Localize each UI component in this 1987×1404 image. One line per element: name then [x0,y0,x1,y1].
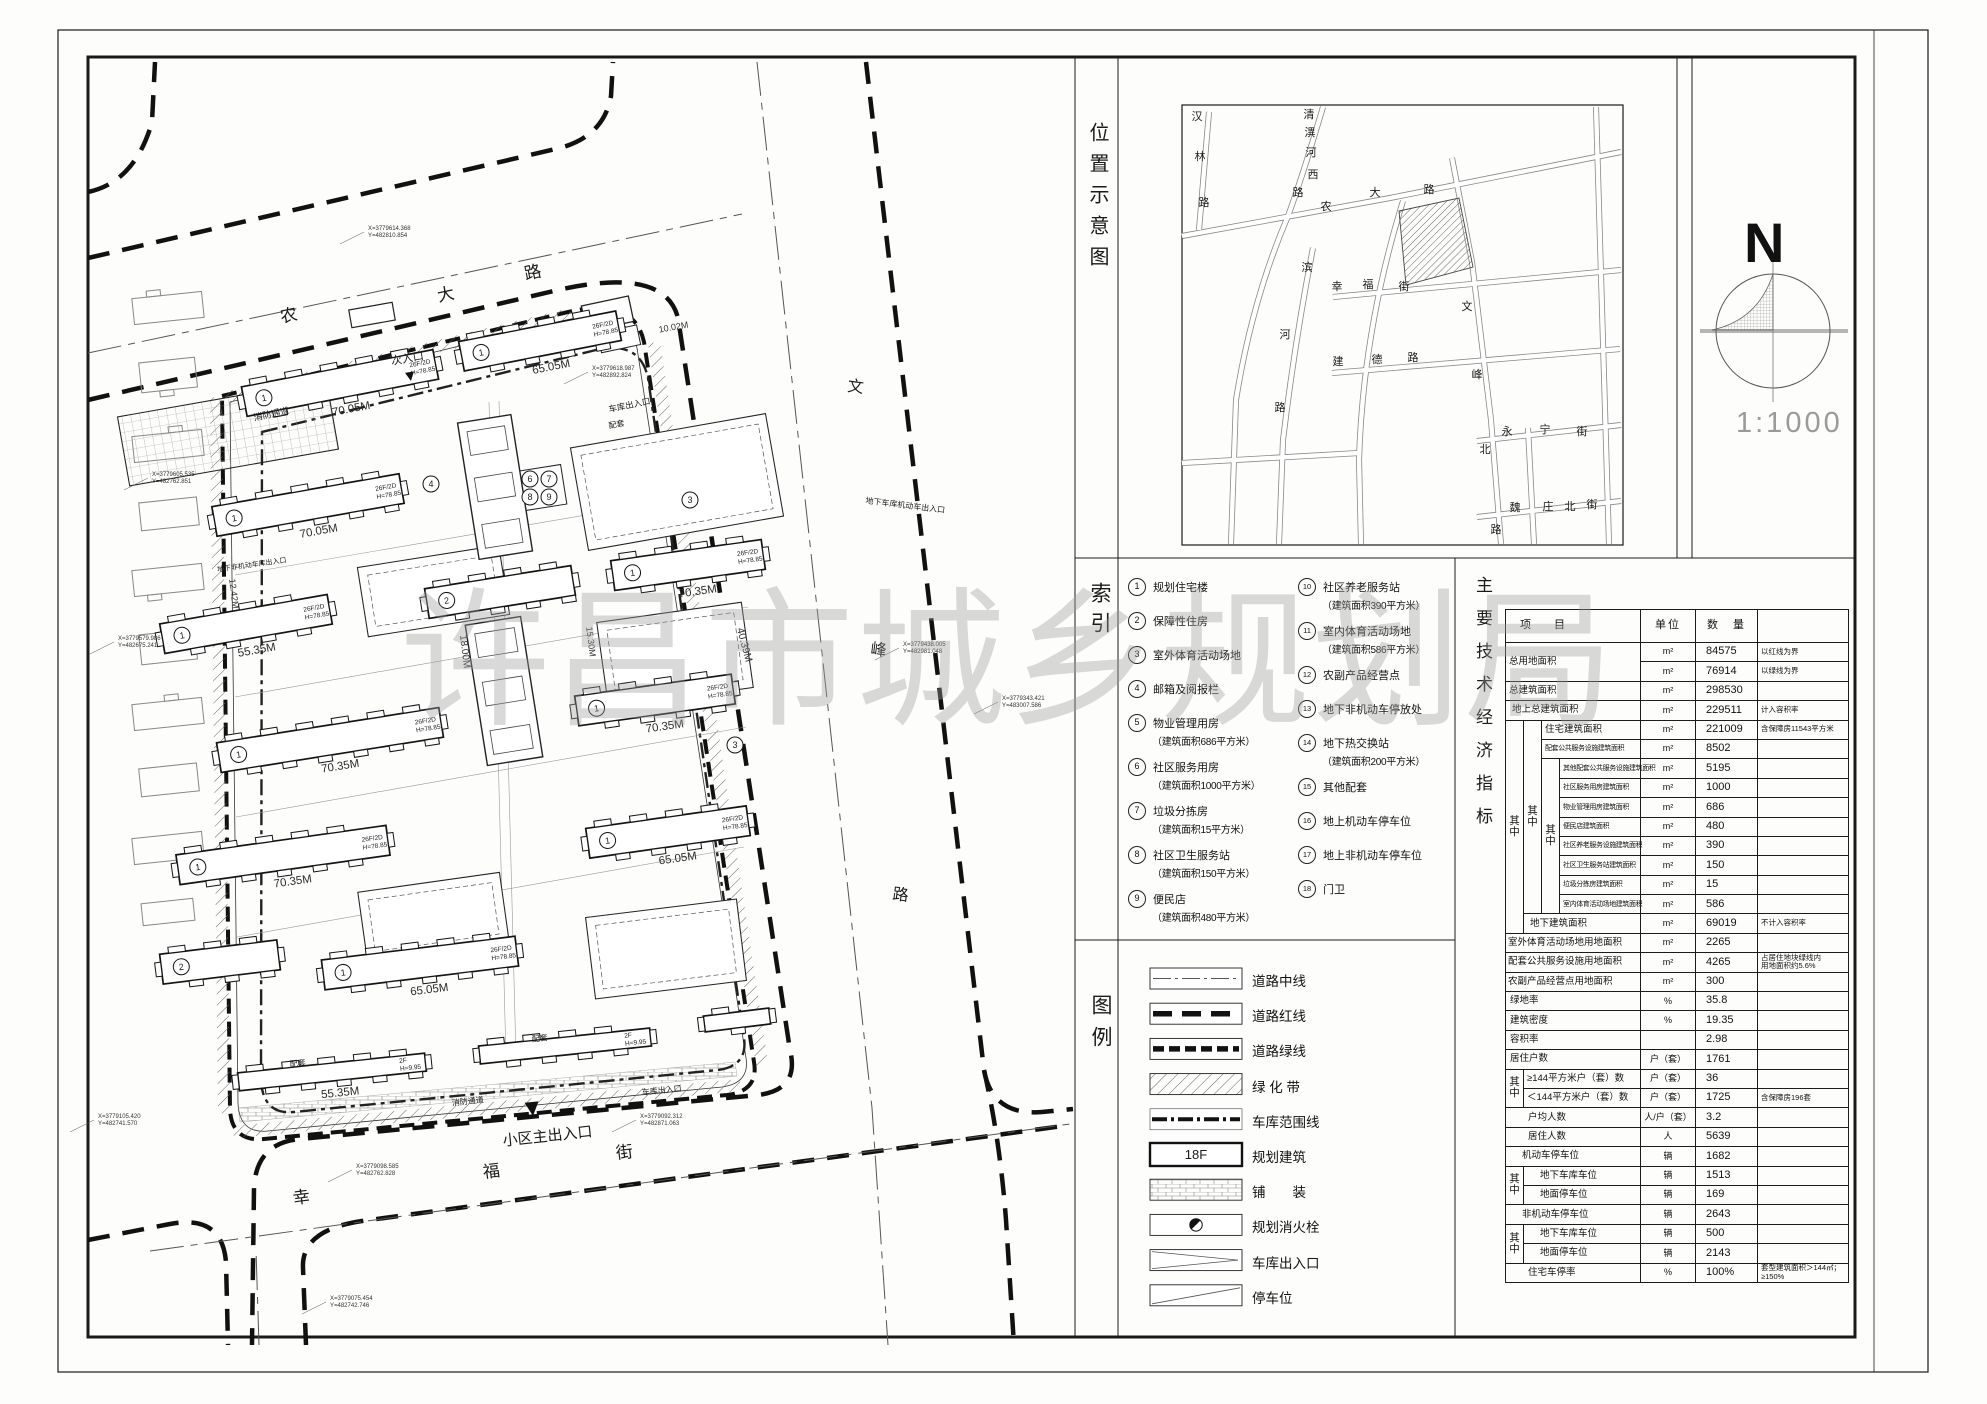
table-item-label: 容积率 [1506,1030,1641,1049]
table-item-label: 物业管理用房建筑面积 [1560,798,1641,817]
index-item: 4邮箱及阅报栏 [1128,680,1300,698]
map-street-name: 文 [1462,299,1473,313]
table-remark-cell [1758,836,1849,855]
table-qty-cell: 390 [1696,836,1758,855]
table-remark-cell [1758,681,1849,700]
street-name-label: 街 [615,1142,634,1163]
north-arrow: N 1:1000 [1700,211,1848,439]
callout-y: Y=482742.746 [330,1303,370,1309]
table-item-label: 农副产品经营点用地面积 [1506,972,1641,991]
table-remark-cell [1758,933,1849,952]
index-item-label: 地上非机动车停车位 [1323,847,1422,863]
scale-text: 1:1000 [1736,407,1843,439]
table-item-label: 绿地率 [1506,992,1641,1011]
table-unit-cell: 人/户（套） [1641,1108,1696,1127]
coordinate-callout: X=3779618.987Y=482892.824 [564,366,635,384]
courtyard-structure [570,414,783,551]
table-remark-cell: 含保障房11543平方米 [1758,720,1849,739]
table-qty-cell: 1761 [1696,1050,1758,1069]
index-item: 15其他配套 [1298,778,1454,796]
index-item-number: 1 [1128,578,1146,596]
index-item-label: 其他配套 [1323,779,1367,795]
map-street-name: 魏 [1510,500,1521,514]
legend-item-label: 规划消火栓 [1252,1216,1320,1236]
index-item-number: 14 [1298,734,1316,752]
callout-y: Y=482871.063 [640,1121,680,1127]
table-qty-cell: 229511 [1696,701,1758,720]
callout-x: X=3779075.454 [330,1296,373,1302]
table-unit-cell: m² [1641,643,1696,662]
index-item-label: 室外体育活动场地 [1153,647,1241,663]
coordinate-callout: X=3779614.368Y=482810.854 [340,226,411,244]
table-qty-cell: 1513 [1696,1166,1758,1185]
table-remark-cell [1758,1127,1849,1146]
table-unit-cell [1641,1030,1696,1049]
table-bracket-cell: 其中 [1506,720,1524,933]
map-street-name: 河 [1306,146,1317,159]
table-unit-cell: 户（套） [1641,1069,1696,1088]
table-unit-cell: m² [1641,895,1696,914]
index-item-area: （建筑面积150平方米） [1152,865,1300,880]
table-row: 绿地率%35.8 [1506,992,1849,1011]
table-qty-cell: 298530 [1696,681,1758,700]
map-street-name: 路 [1491,523,1502,536]
table-unit-cell: 辆 [1641,1147,1696,1166]
callout-x: X=3779614.368 [368,226,411,232]
index-item-number: 5 [1128,714,1146,732]
table-row: 其中地下车库车位辆500 [1506,1224,1849,1243]
building-footprint: 2FH=9.95 [472,1021,658,1070]
index-item-number: 11 [1298,622,1316,640]
table-item-label: 室内体育活动场地建筑面积 [1560,895,1641,914]
street-name-label: 幸 [292,1187,311,1208]
callout-y: Y=482762.828 [356,1171,396,1177]
index-number-marker: 3 [682,492,698,508]
building-footprint [697,1001,778,1038]
index-number-marker: 4 [423,476,439,492]
table-item-label: 社区卫生服务站建筑面积 [1560,856,1641,875]
table-qty-cell: 2643 [1696,1205,1758,1224]
entrance-label: 地下非机动车库出入口 [216,555,287,574]
table-remark-cell [1758,759,1849,778]
map-street-name: 北 [1565,500,1576,513]
entrance-label: 配套 [289,1057,306,1069]
table-row: 建筑密度%19.35 [1506,1011,1849,1030]
index-item-label: 邮箱及阅报栏 [1153,681,1219,697]
legend-item-label: 绿 化 带 [1252,1076,1300,1096]
site-plan: 40.39M 170.05M26F/2DH=78.85165.05M26F/2D… [70,62,1073,1345]
table-qty-cell: 480 [1696,817,1758,836]
table-row: 室外体育活动场地用地面积m²2265 [1506,933,1849,952]
legend-symbol-greenline [1150,1038,1242,1059]
location-map: 汉林路清潩河西路农大路滨河路幸福街文峰北路建德路永宁街魏庄北街 [1182,107,1621,544]
table-remark-cell [1758,1166,1849,1185]
table-unit-cell: % [1641,1011,1696,1030]
index-number: 9 [546,492,551,502]
table-qty-cell: 76914 [1696,662,1758,681]
map-street-name: 河 [1280,328,1291,341]
index-item-label: 门卫 [1323,881,1345,897]
index-item-label: 保障性住房 [1153,613,1208,629]
table-unit-cell: m² [1641,914,1696,933]
street-name-label: 农 [279,305,300,327]
entrance-label: 车库出入口 [608,396,652,415]
table-row: 其中其中住宅建筑面积m²221009含保障房11543平方米 [1506,720,1849,739]
map-street-name: 街 [1587,497,1598,511]
table-remark-cell [1758,1205,1849,1224]
north-letter: N [1744,211,1784,274]
table-unit-cell: m² [1641,662,1696,681]
table-unit-cell: % [1641,992,1696,1011]
table-header-cell [1758,610,1849,643]
table-row: 总用地面积m²84575以红线为界 [1506,643,1849,662]
index-item: 12农副产品经营点 [1298,666,1454,684]
index-item-number: 7 [1128,802,1146,820]
map-street-name: 幸 [1332,280,1343,293]
index-item-label: 垃圾分拣房 [1153,803,1208,819]
table-unit-cell: m² [1641,856,1696,875]
table-qty-cell: 1725 [1696,1088,1758,1107]
table-qty-cell: 586 [1696,895,1758,914]
legend-item-label: 道路中线 [1252,970,1306,990]
map-street-name: 建 [1333,354,1344,368]
legend-panel-title: 图例 [1085,994,1115,1058]
table-item-label: 社区养老服务设施建筑面积 [1560,836,1641,855]
table-qty-cell: 100% [1696,1263,1758,1282]
map-street-name: 德 [1372,352,1383,366]
callout-y: Y=482981.048 [903,649,943,655]
map-street-name: 庄 [1543,499,1554,513]
map-street-name: 西 [1308,169,1319,181]
index-item-number: 15 [1298,778,1316,796]
index-item-number: 17 [1298,846,1316,864]
table-item-label: 配套公共服务设施建筑面积 [1542,739,1641,758]
building-length-label: 70.05M [299,522,339,540]
legend-symbol-redline [1150,1003,1242,1024]
callout-x: X=3779579.986 [118,636,161,642]
index-item-number: 13 [1298,700,1316,718]
index-item-number: 9 [1128,890,1146,908]
legend-symbol-centerline [1150,968,1242,989]
table-item-label: 地面停车位 [1524,1244,1641,1263]
table-unit-cell: m² [1641,875,1696,894]
coordinate-callout: X=3779579.986Y=482675.241 [90,636,161,654]
table-bracket-cell: 其中 [1506,1166,1524,1205]
table-row: 地上总建筑面积m²229511计入容积率 [1506,701,1849,720]
legend-symbols: 18F [1150,968,1242,1306]
callout-y: Y=482762.851 [152,479,192,485]
callout-y: Y=482810.854 [368,233,408,239]
table-unit-cell: 户（套） [1641,1050,1696,1069]
index-number: 8 [527,492,532,502]
legend-symbol-paving [1150,1179,1242,1200]
table-unit-cell: m² [1641,933,1696,952]
table-qty-cell: 2.98 [1696,1030,1758,1049]
table-unit-cell: m² [1641,739,1696,758]
building-footprint: 170.35M26F/2DH=78.85 [210,701,453,792]
legend-item-label: 车库范围线 [1252,1111,1320,1131]
table-row: 配套公共服务设施用地面积m²4265占居住地块绿线内 用地面积约5.6% [1506,953,1849,972]
map-street-name: 路 [1275,401,1286,414]
table-qty-cell: 2143 [1696,1244,1758,1263]
index-number-marker: 9 [541,489,557,505]
table-unit-cell: m² [1641,778,1696,797]
callout-x: X=3779438.005 [903,642,946,648]
table-qty-cell: 35.8 [1696,992,1758,1011]
table-qty-cell: 150 [1696,856,1758,875]
map-street-name: 峰 [1472,368,1483,381]
dimension-label: 10.02M [658,320,689,335]
building-floors-label: 2F [399,1057,407,1065]
street-name-label: 峰 [870,640,888,660]
index-item: 14地下热交换站（建筑面积200平方米） [1298,734,1454,768]
table-unit-cell: m² [1641,798,1696,817]
index-number: 4 [428,479,433,489]
table-unit-cell: 辆 [1641,1244,1696,1263]
table-item-label: ＜144平方米户（套）数 [1524,1088,1641,1107]
table-row: 总建筑面积m²298530 [1506,681,1849,700]
table-qty-cell: 84575 [1696,643,1758,662]
table-item-label: 地下建筑面积 [1524,914,1641,933]
table-unit-cell: 辆 [1641,1205,1696,1224]
table-item-label: 户均人数 [1506,1108,1641,1127]
index-number-marker: 7 [541,471,557,487]
table-row: 户均人数人/户（套）3.2 [1506,1108,1849,1127]
table-row: 配套公共服务设施建筑面积m²8502 [1506,739,1849,758]
callout-y: Y=482892.824 [592,373,632,379]
table-qty-cell: 221009 [1696,720,1758,739]
legend-symbol-garage [1150,1109,1242,1130]
table-remark-cell: 以红线为界 [1758,643,1849,662]
table-unit-cell: m² [1641,953,1696,972]
table-item-label: 垃圾分拣房建筑面积 [1560,875,1641,894]
table-qty-cell: 5639 [1696,1127,1758,1146]
table-row: ＜144平方米户（套）数户（套）1725含保障房196套 [1506,1088,1849,1107]
table-qty-cell: 5195 [1696,759,1758,778]
table-unit-cell: m² [1641,701,1696,720]
table-qty-cell: 4265 [1696,953,1758,972]
index-item-number: 12 [1298,666,1316,684]
map-street-name: 农 [1321,199,1332,213]
table-row: 居住户数户（套）1761 [1506,1050,1849,1069]
table-remark-cell [1758,1185,1849,1204]
map-street-name: 路 [1408,351,1419,364]
coordinate-callout: X=3779075.454Y=482742.746 [302,1296,373,1314]
table-remark-cell [1758,856,1849,875]
map-street-name: 北 [1480,443,1491,456]
table-unit-cell: m² [1641,817,1696,836]
callout-x: X=3779105.420 [98,1114,141,1120]
index-item-label: 便民店 [1153,891,1186,907]
index-item: 13地下非机动车停放处 [1298,700,1454,718]
table-remark-cell [1758,875,1849,894]
map-road-fills [1182,107,1621,544]
index-item-number: 8 [1128,846,1146,864]
table-unit-cell: m² [1641,681,1696,700]
indicators-panel-title: 主要技术经济指标 [1470,576,1495,840]
index-item-label: 社区服务用房 [1153,759,1219,775]
table-item-label: 总建筑面积 [1506,681,1641,700]
index-item: 9便民店（建筑面积480平方米） [1128,890,1300,924]
map-street-name: 清 [1304,108,1315,121]
building-length-label: 55.35M [237,641,277,659]
index-number-marker: 8 [522,489,538,505]
table-remark-cell [1758,778,1849,797]
table-unit-cell: m² [1641,836,1696,855]
index-item-label: 社区卫生服务站 [1153,847,1230,863]
index-number-marker: 3 [727,737,743,753]
table-item-label: 地下车库车位 [1524,1166,1641,1185]
courtyard-structure [586,899,747,999]
callout-y: Y=482741.570 [98,1121,138,1127]
building-length-label: 65.05M [410,982,450,999]
table-item-label: ≥144平方米户（套）数 [1524,1069,1641,1088]
callout-x: X=3779092.312 [640,1114,683,1120]
table-unit-cell: 辆 [1641,1224,1696,1243]
index-item-area: （建筑面积1000平方米） [1152,777,1300,792]
table-qty-cell: 169 [1696,1185,1758,1204]
table-remark-cell [1758,798,1849,817]
table-remark-cell [1758,1244,1849,1263]
street-name-label: 路 [892,885,910,905]
table-remark-cell: 以绿线为界 [1758,662,1849,681]
table-remark-cell [1758,1030,1849,1049]
entrance-label: 地下车库机动车出入口 [865,495,946,515]
table-item-label: 地下车库车位 [1524,1224,1641,1243]
callout-x: X=3779605.535 [152,472,195,478]
legend-symbol-ramp [1150,1250,1242,1271]
map-street-name: 大 [1370,185,1381,199]
street-name-label: 文 [847,377,865,397]
table-item-label: 住宅建筑面积 [1542,720,1641,739]
table-remark-cell [1758,1108,1849,1127]
table-item-label: 非机动车停车位 [1506,1205,1641,1224]
coordinate-callout: X=3779343.421Y=483007.586 [974,696,1045,714]
table-remark-cell [1758,1147,1849,1166]
index-item-label: 地下热交换站 [1323,735,1389,751]
table-row: 容积率2.98 [1506,1030,1849,1049]
index-item-label: 物业管理用房 [1153,715,1219,731]
map-street-name: 路 [1424,183,1435,196]
table-row: 其中≥144平方米户（套）数户（套）36 [1506,1069,1849,1088]
table-row: 其中其他配套公共服务设施建筑面积m²5195 [1506,759,1849,778]
table-unit-cell: 户（套） [1641,1088,1696,1107]
index-item: 1规划住宅楼 [1128,578,1300,596]
building-floors-label: 2F [624,1032,632,1040]
table-qty-cell: 500 [1696,1224,1758,1243]
coordinate-callout: X=3779098.585Y=482762.828 [328,1164,399,1182]
index-item-number: 6 [1128,758,1146,776]
table-remark-cell [1758,972,1849,991]
map-street-name: 汉 [1192,110,1203,123]
index-item: 17地上非机动车停车位 [1298,846,1454,864]
table-qty-cell: 8502 [1696,739,1758,758]
table-remark-cell [1758,1050,1849,1069]
table-row: 机动车停车位辆1682 [1506,1147,1849,1166]
table-qty-cell: 2265 [1696,933,1758,952]
index-item: 8社区卫生服务站（建筑面积150平方米） [1128,846,1300,880]
table-remark-cell [1758,1069,1849,1088]
table-row: 地面停车位辆169 [1506,1185,1849,1204]
legend-item-label: 停车位 [1252,1287,1293,1307]
table-remark-cell [1758,992,1849,1011]
callout-x: X=3779618.987 [592,366,635,372]
index-item-number: 10 [1298,578,1316,596]
table-bracket-cell: 其中 [1542,759,1560,914]
dimension-label: 12.42M [227,578,241,609]
index-item-label: 社区养老服务站 [1323,579,1400,595]
table-header-cell: 数 量 [1696,610,1758,643]
table-item-label: 总用地面积 [1506,643,1641,682]
index-item-number: 4 [1128,680,1146,698]
table-unit-cell: m² [1641,720,1696,739]
central-structure [458,415,533,560]
index-item: 16地上机动车停车位 [1298,812,1454,830]
index-list-col2: 10社区养老服务站（建筑面积390平方米）11室内体育活动场地（建筑面积586平… [1298,578,1454,914]
legend-symbol-parking [1150,1285,1242,1306]
coordinate-callout: X=3779092.312Y=482871.063 [612,1114,683,1132]
table-item-label: 机动车停车位 [1506,1147,1641,1166]
map-street-name: 街 [1399,279,1410,293]
table-row: 地面停车位辆2143 [1506,1244,1849,1263]
index-number-marker: 6 [522,471,538,487]
index-item: 2保障性住房 [1128,612,1300,630]
index-item-area: （建筑面积480平方米） [1152,909,1300,924]
legend-symbol-hydrant [1150,1214,1242,1235]
table-unit-cell: 辆 [1641,1166,1696,1185]
table-qty-cell: 36 [1696,1069,1758,1088]
legend-symbol-building: 18F [1150,1143,1242,1166]
site-parcel-hatch [1399,198,1473,285]
street-name-label: 大 [436,284,457,306]
table-row: 住宅车停率%100%套型建筑面积＞144㎡； ≥150% [1506,1263,1849,1282]
table-item-label: 室外体育活动场地用地面积 [1506,933,1641,952]
table-row: 农副产品经营点用地面积m²300 [1506,972,1849,991]
table-row: 其中地下车库车位辆1513 [1506,1166,1849,1185]
index-item-label: 规划住宅楼 [1153,579,1208,595]
table-unit-cell: % [1641,1263,1696,1282]
index-item: 10社区养老服务站（建筑面积390平方米） [1298,578,1454,612]
table-bracket-cell: 其中 [1524,720,1542,914]
building-length-label: 70.05M [331,400,371,419]
index-item-number: 16 [1298,812,1316,830]
index-item-number: 18 [1298,880,1316,898]
index-item-area: （建筑面积686平方米） [1152,733,1300,748]
table-qty-cell: 686 [1696,798,1758,817]
location-panel-title: 位置示意图 [1083,122,1112,277]
index-item-label: 农副产品经营点 [1323,667,1400,683]
map-street-name: 街 [1577,424,1588,438]
legend-item-label: 道路红线 [1252,1005,1306,1025]
index-item-area: （建筑面积200平方米） [1322,753,1454,768]
table-item-label: 居住户数 [1506,1050,1641,1069]
table-item-label: 便民店建筑面积 [1560,817,1641,836]
entrance-label: 配套 [608,418,626,431]
drawing-sheet: 40.39M 170.05M26F/2DH=78.85165.05M26F/2D… [0,0,1987,1404]
map-road-casings [1182,107,1621,544]
table-remark-cell [1758,817,1849,836]
table-remark-cell [1758,1224,1849,1243]
street-name-label: 福 [482,1161,501,1182]
table-remark-cell: 计入容积率 [1758,701,1849,720]
table-header-cell: 项 目 [1506,610,1641,643]
legend-symbol-greenbelt [1150,1074,1242,1095]
map-street-name: 永 [1502,424,1513,438]
index-item: 7垃圾分拣房（建筑面积15平方米） [1128,802,1300,836]
table-item-label: 居住人数 [1506,1127,1641,1146]
legend-item-label: 道路绿线 [1252,1040,1306,1060]
table-header-cell: 单位 [1641,610,1696,643]
